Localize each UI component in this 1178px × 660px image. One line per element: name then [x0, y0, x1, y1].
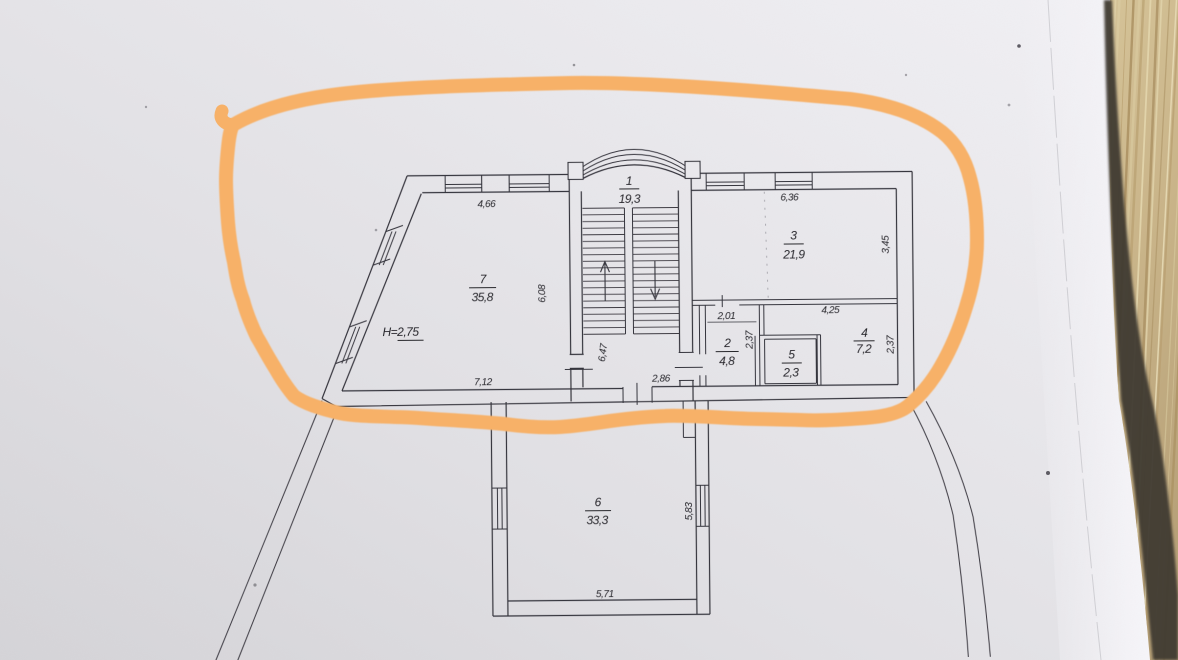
svg-text:4,8: 4,8	[719, 354, 735, 368]
svg-text:4: 4	[861, 326, 868, 340]
svg-text:4,66: 4,66	[477, 199, 496, 210]
svg-text:5,71: 5,71	[596, 589, 614, 600]
svg-text:35,8: 35,8	[471, 290, 493, 304]
svg-text:7,12: 7,12	[474, 377, 493, 388]
svg-text:3: 3	[790, 228, 797, 242]
svg-text:6,08: 6,08	[537, 284, 548, 303]
svg-text:4,25: 4,25	[821, 305, 840, 316]
svg-text:2,37: 2,37	[744, 330, 755, 350]
svg-text:2,3: 2,3	[782, 365, 799, 379]
svg-text:6: 6	[595, 495, 602, 509]
svg-text:2,86: 2,86	[651, 374, 671, 385]
svg-text:5,83: 5,83	[684, 502, 695, 521]
svg-text:7,2: 7,2	[856, 342, 872, 356]
svg-text:3,45: 3,45	[881, 235, 892, 254]
svg-text:5: 5	[788, 347, 795, 361]
svg-text:2,01: 2,01	[716, 311, 735, 322]
svg-text:19,3: 19,3	[619, 192, 641, 206]
svg-text:6,36: 6,36	[780, 192, 799, 203]
svg-text:1: 1	[626, 174, 633, 188]
svg-text:2,37: 2,37	[886, 335, 897, 355]
svg-text:H=2,75: H=2,75	[382, 325, 419, 339]
svg-text:21,9: 21,9	[782, 247, 805, 261]
svg-text:33,3: 33,3	[586, 513, 608, 527]
svg-text:2: 2	[723, 336, 731, 350]
